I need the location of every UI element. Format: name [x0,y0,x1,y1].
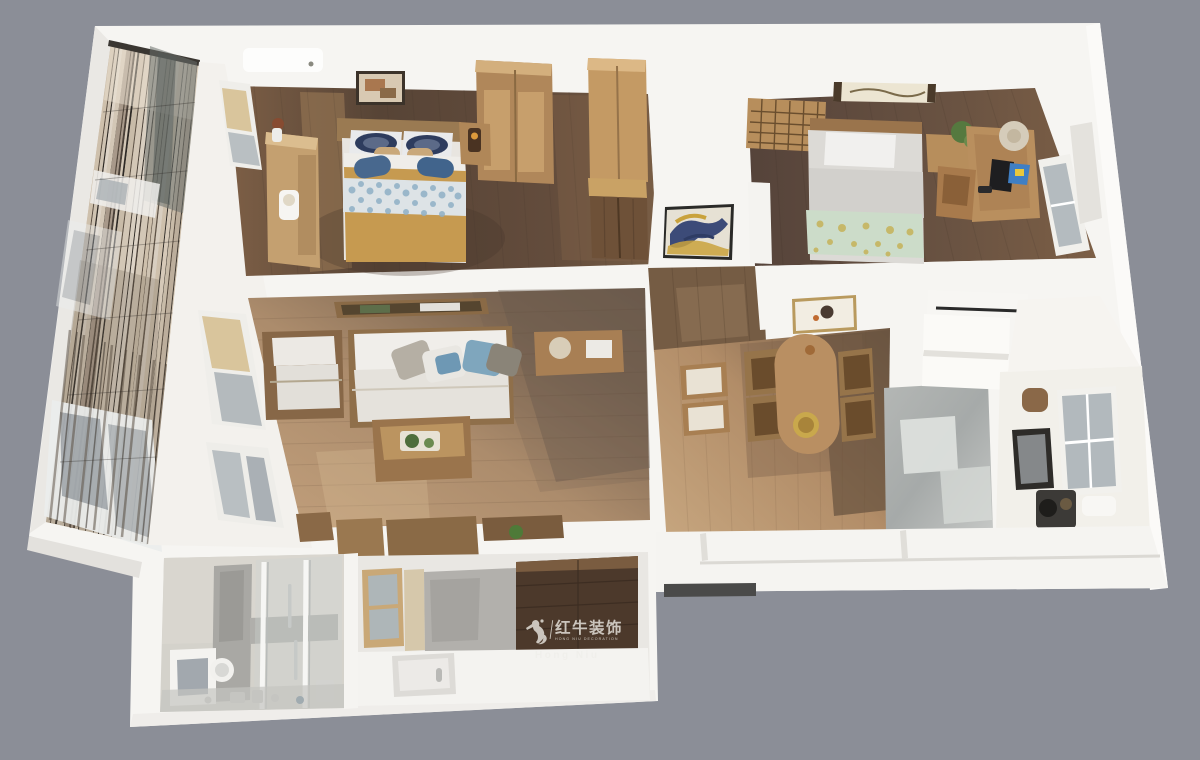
svg-text:红牛装饰: 红牛装饰 [555,618,623,637]
svg-text:HONG NIU DECORATION: HONG NIU DECORATION [555,637,619,641]
svg-text:Hong Niu: Hong Niu [535,650,599,661]
